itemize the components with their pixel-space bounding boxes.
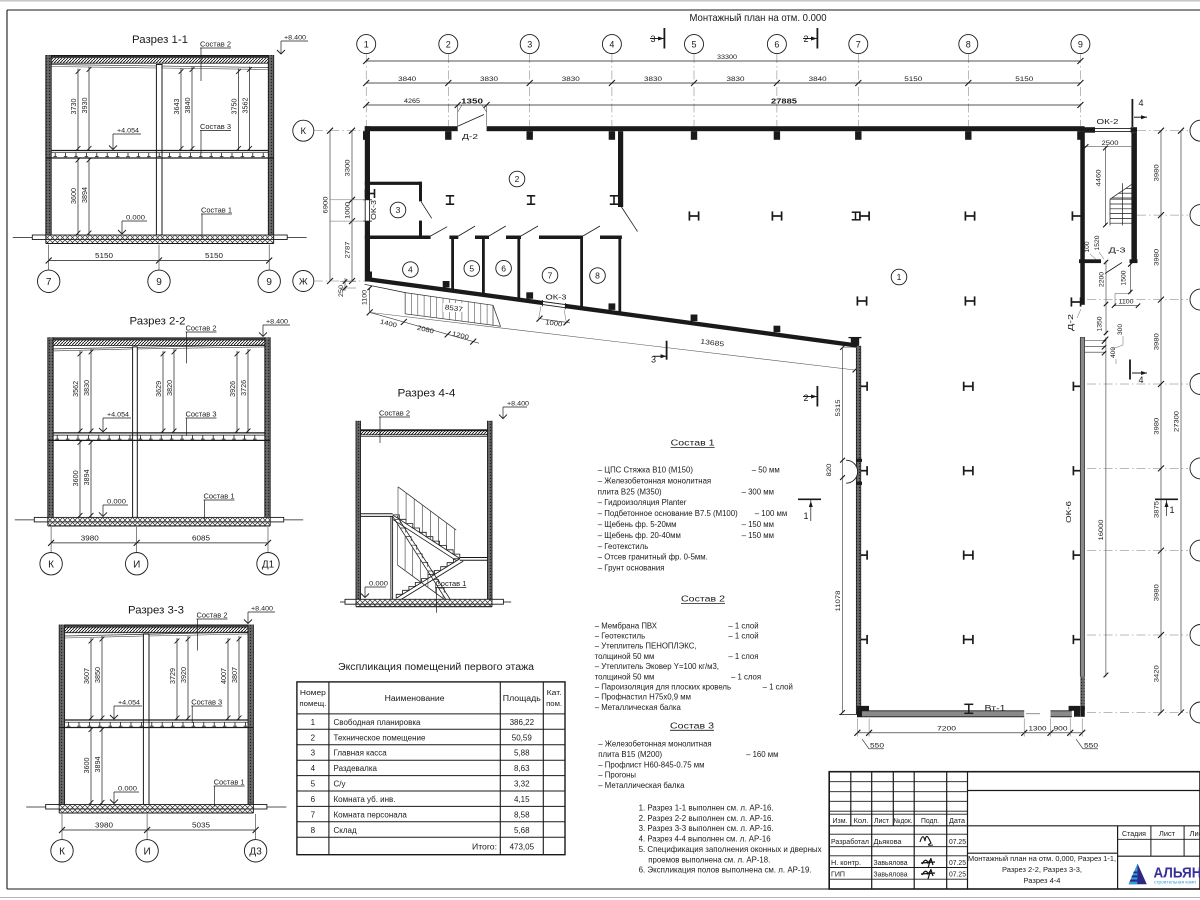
svg-text:– 1 слой: – 1 слой — [728, 632, 758, 641]
svg-text:ОК-3: ОК-3 — [546, 293, 567, 302]
svg-text:5: 5 — [691, 39, 696, 49]
svg-text:3980: 3980 — [81, 533, 99, 542]
svg-text:3562: 3562 — [73, 381, 80, 397]
svg-text:– Гидроизоляция Planter: – Гидроизоляция Planter — [598, 498, 687, 507]
svg-text:Дата: Дата — [949, 818, 965, 825]
svg-text:6: 6 — [501, 263, 506, 273]
svg-text:7: 7 — [856, 39, 861, 49]
svg-text:1100: 1100 — [363, 289, 369, 305]
svg-text:ОК-2: ОК-2 — [1097, 117, 1119, 126]
svg-text:1: 1 — [897, 272, 902, 282]
svg-text:7: 7 — [46, 277, 52, 288]
svg-text:3920: 3920 — [181, 667, 188, 683]
svg-text:0.000: 0.000 — [369, 581, 388, 588]
svg-text:– 1 слой: – 1 слой — [763, 683, 793, 692]
svg-text:Завьялова: Завьялова — [874, 860, 908, 867]
svg-text:4,15: 4,15 — [514, 795, 530, 804]
svg-text:Вт-1: Вт-1 — [985, 704, 1007, 713]
svg-text:400: 400 — [1111, 346, 1117, 358]
svg-text:3726: 3726 — [241, 380, 248, 396]
svg-text:Свободная планировка: Свободная планировка — [334, 718, 421, 727]
svg-text:И: И — [133, 559, 140, 570]
svg-text:386,22: 386,22 — [510, 718, 535, 727]
svg-text:Площадь: Площадь — [503, 694, 541, 703]
svg-text:4265: 4265 — [404, 98, 421, 105]
svg-text:– Железобетонная монолитная: – Железобетонная монолитная — [598, 476, 711, 485]
svg-text:2. Разрез 2-2 выполнен см. л.: 2. Разрез 2-2 выполнен см. л. АР-16. — [639, 813, 774, 823]
svg-text:100: 100 — [1085, 241, 1091, 253]
svg-text:4: 4 — [1138, 98, 1143, 108]
svg-text:3830: 3830 — [727, 76, 746, 83]
svg-text:– 150 мм: – 150 мм — [742, 520, 774, 529]
svg-text:Завьялова: Завьялова — [874, 872, 908, 879]
svg-text:Комната персонала: Комната персонала — [334, 810, 408, 819]
svg-text:3894: 3894 — [82, 187, 89, 203]
svg-text:1: 1 — [803, 511, 808, 521]
svg-text:8: 8 — [595, 271, 600, 281]
svg-text:Д1: Д1 — [262, 559, 275, 570]
svg-text:3830: 3830 — [480, 76, 499, 83]
svg-text:4: 4 — [609, 39, 614, 49]
svg-text:3,32: 3,32 — [514, 780, 530, 789]
svg-text:Разрез 2-2: Разрез 2-2 — [130, 316, 186, 328]
svg-text:3600: 3600 — [71, 188, 78, 204]
svg-text:толщиной 50 мм: толщиной 50 мм — [595, 652, 655, 661]
svg-text:0.000: 0.000 — [126, 215, 145, 222]
svg-text:3875: 3875 — [1154, 501, 1161, 518]
svg-text:4: 4 — [311, 764, 316, 773]
svg-text:Д3: Д3 — [249, 846, 262, 857]
svg-text:строительная комп: строительная комп — [1154, 880, 1197, 885]
svg-text:– Пароизоляция для плоских кро: – Пароизоляция для плоских кровель — [595, 683, 731, 692]
svg-text:4: 4 — [408, 265, 413, 275]
svg-text:2: 2 — [803, 393, 808, 403]
svg-text:+8.400: +8.400 — [251, 606, 273, 613]
svg-text:+8.400: +8.400 — [266, 319, 288, 326]
svg-text:Техническое помещение: Техническое помещение — [334, 733, 426, 742]
svg-text:16000: 16000 — [1098, 519, 1105, 540]
svg-text:3820: 3820 — [167, 380, 174, 396]
svg-text:1: 1 — [364, 39, 369, 49]
svg-text:900: 900 — [1054, 726, 1068, 733]
svg-text:плита В25 (М350): плита В25 (М350) — [598, 487, 662, 496]
svg-text:Состав 2: Состав 2 — [197, 611, 228, 620]
svg-text:3600: 3600 — [84, 757, 91, 773]
svg-text:Экспликация помещений первого: Экспликация помещений первого этажа — [338, 662, 534, 673]
svg-text:1000: 1000 — [345, 202, 352, 219]
svg-text:6. Экспликация полов выполнена: 6. Экспликация полов выполнена см. л. АР… — [639, 865, 812, 875]
svg-text:+8.400: +8.400 — [284, 35, 306, 42]
svg-text:ОК-6: ОК-6 — [1064, 501, 1073, 523]
svg-text:473,05: 473,05 — [510, 843, 535, 852]
svg-text:3830: 3830 — [644, 76, 663, 83]
svg-text:2787: 2787 — [345, 241, 352, 258]
svg-text:50,59: 50,59 — [512, 733, 533, 742]
svg-text:ГИП: ГИП — [831, 872, 845, 879]
svg-text:3980: 3980 — [1154, 417, 1161, 434]
svg-text:6900: 6900 — [323, 196, 330, 213]
svg-text:4460: 4460 — [1096, 169, 1103, 186]
svg-text:1: 1 — [311, 718, 316, 727]
svg-text:– Геотекстиль: – Геотекстиль — [598, 542, 648, 551]
svg-text:3643: 3643 — [174, 98, 181, 114]
svg-text:К: К — [301, 126, 307, 137]
svg-text:– ЦПС Стяжка В10 (М150): – ЦПС Стяжка В10 (М150) — [598, 466, 694, 475]
svg-text:3: 3 — [527, 39, 532, 49]
svg-text:27300: 27300 — [1174, 411, 1181, 432]
svg-text:2200: 2200 — [1100, 271, 1106, 287]
svg-text:07.25: 07.25 — [949, 860, 966, 867]
svg-text:2: 2 — [446, 39, 451, 49]
svg-text:3: 3 — [311, 749, 316, 758]
svg-text:7: 7 — [548, 270, 553, 280]
svg-text:И: И — [144, 846, 151, 857]
svg-text:1520: 1520 — [1095, 235, 1101, 251]
svg-text:6: 6 — [311, 795, 316, 804]
svg-text:3562: 3562 — [242, 97, 249, 113]
svg-text:820: 820 — [826, 463, 833, 476]
svg-text:Разрез 4-4: Разрез 4-4 — [1024, 876, 1061, 885]
svg-text:проемов выполнена см. л. АР-18: проемов выполнена см. л. АР-18. — [648, 854, 770, 864]
svg-text:3807: 3807 — [232, 667, 239, 683]
svg-text:5. Спецификация заполнения око: 5. Спецификация заполнения оконных и две… — [639, 844, 823, 854]
svg-text:К: К — [59, 846, 65, 857]
svg-text:9: 9 — [156, 277, 162, 288]
svg-text:Состав 3: Состав 3 — [186, 410, 217, 419]
svg-text:пом.: пом. — [546, 701, 562, 708]
svg-text:3894: 3894 — [95, 756, 102, 772]
svg-text:3750: 3750 — [231, 98, 238, 114]
svg-text:Лист: Лист — [1159, 831, 1176, 838]
svg-text:– 1 слой: – 1 слой — [728, 621, 758, 630]
svg-text:3980: 3980 — [1154, 248, 1161, 265]
svg-text:11078: 11078 — [835, 590, 842, 611]
svg-text:Состав 3: Состав 3 — [670, 720, 714, 730]
svg-text:1500: 1500 — [1122, 270, 1128, 286]
svg-text:– Мембрана ПВХ: – Мембрана ПВХ — [595, 621, 658, 630]
svg-text:+4.054: +4.054 — [118, 700, 140, 707]
svg-text:– Прогоны: – Прогоны — [598, 771, 636, 780]
svg-text:– Подбетонное основание В7.5 (: – Подбетонное основание В7.5 (М100) — [598, 509, 738, 518]
svg-text:Состав 1: Состав 1 — [671, 438, 715, 448]
svg-text:Состав 1: Состав 1 — [204, 492, 235, 501]
svg-text:1300: 1300 — [1029, 726, 1047, 733]
svg-text:5,88: 5,88 — [514, 749, 530, 758]
svg-text:Состав 3: Состав 3 — [200, 122, 231, 131]
svg-text:5: 5 — [469, 264, 474, 274]
svg-text:плита В15 (М200): плита В15 (М200) — [598, 750, 662, 759]
svg-text:помещ.: помещ. — [299, 699, 326, 708]
svg-text:Итого:: Итого: — [472, 843, 497, 852]
svg-text:0.000: 0.000 — [118, 786, 137, 793]
svg-text:ОК-3: ОК-3 — [369, 200, 378, 220]
svg-text:8: 8 — [966, 39, 971, 49]
svg-text:Стадия: Стадия — [1122, 831, 1146, 838]
svg-text:3730: 3730 — [71, 98, 78, 114]
svg-text:– Утеплитель ПЕНОПЛЭКС,: – Утеплитель ПЕНОПЛЭКС, — [595, 642, 697, 651]
svg-text:1350: 1350 — [1098, 316, 1104, 332]
svg-text:5150: 5150 — [1015, 76, 1034, 83]
svg-text:Кол.: Кол. — [854, 818, 869, 825]
svg-text:3600: 3600 — [73, 470, 80, 486]
svg-text:Номер: Номер — [300, 688, 326, 697]
svg-text:– 1 слоя: – 1 слоя — [728, 652, 758, 661]
svg-text:2: 2 — [311, 733, 316, 742]
svg-text:0.000: 0.000 — [107, 499, 126, 506]
svg-text:Подп.: Подп. — [921, 818, 939, 825]
svg-text:4: 4 — [1138, 375, 1143, 385]
svg-text:Разработал: Разработал — [831, 838, 869, 846]
svg-text:– Утеплитель Эковер Y=100 кг/м: – Утеплитель Эковер Y=100 кг/м3, — [595, 662, 719, 671]
svg-text:1100: 1100 — [1119, 300, 1135, 306]
svg-text:– 300 мм: – 300 мм — [742, 487, 774, 496]
svg-text:3300: 3300 — [345, 159, 352, 176]
svg-text:9: 9 — [266, 277, 272, 288]
svg-text:27885: 27885 — [771, 97, 797, 106]
svg-text:Д-2: Д-2 — [462, 132, 478, 141]
svg-text:Дьякова: Дьякова — [874, 839, 902, 846]
svg-text:3: 3 — [396, 205, 401, 215]
svg-text:Состав 2: Состав 2 — [681, 594, 725, 604]
svg-text:07.25: 07.25 — [949, 872, 966, 879]
svg-text:Состав 1: Состав 1 — [201, 206, 232, 215]
svg-text:550: 550 — [1084, 743, 1098, 750]
svg-text:Ж: Ж — [299, 276, 308, 287]
svg-text:– 100 мм: – 100 мм — [755, 509, 787, 518]
svg-text:2500: 2500 — [1102, 140, 1119, 147]
svg-text:Лис: Лис — [1190, 831, 1200, 838]
svg-text:– 50 мм: – 50 мм — [752, 466, 780, 475]
svg-text:Разрез 4-4: Разрез 4-4 — [398, 388, 456, 400]
svg-text:9: 9 — [1078, 39, 1083, 49]
svg-text:Состав 3: Состав 3 — [191, 698, 222, 707]
svg-text:5: 5 — [311, 780, 316, 789]
svg-text:Состав 2: Состав 2 — [200, 40, 231, 49]
svg-text:– Профнастил Н75х0,9 мм: – Профнастил Н75х0,9 мм — [595, 693, 691, 702]
svg-text:3980: 3980 — [1154, 333, 1161, 350]
svg-text:3894: 3894 — [84, 469, 91, 485]
svg-text:Кат.: Кат. — [547, 690, 562, 697]
svg-text:+4.054: +4.054 — [107, 412, 129, 419]
svg-text:33300: 33300 — [717, 54, 738, 61]
svg-text:3980: 3980 — [95, 821, 113, 830]
svg-text:5150: 5150 — [904, 76, 923, 83]
svg-text:Склад: Склад — [334, 826, 357, 835]
svg-text:Главная касса: Главная касса — [334, 749, 388, 758]
svg-text:+8.400: +8.400 — [507, 401, 529, 408]
svg-text:550: 550 — [870, 743, 884, 750]
svg-text:4. Разрез 4-4 выполнен см. л.: 4. Разрез 4-4 выполнен см. л. АР-16 — [639, 834, 771, 844]
svg-text:Состав 2: Состав 2 — [186, 324, 217, 333]
svg-text:3840: 3840 — [809, 76, 828, 83]
svg-text:3926: 3926 — [230, 381, 237, 397]
svg-text:Н. контр.: Н. контр. — [831, 860, 861, 867]
svg-text:+4.054: +4.054 — [117, 128, 139, 135]
svg-text:5035: 5035 — [192, 821, 210, 830]
svg-text:– 150 мм: – 150 мм — [742, 531, 774, 540]
svg-text:8,58: 8,58 — [514, 810, 530, 819]
svg-text:Д-2: Д-2 — [1066, 314, 1075, 331]
svg-text:Состав 1: Состав 1 — [435, 579, 466, 588]
svg-text:5150: 5150 — [205, 251, 223, 260]
svg-text:– 160 мм: – 160 мм — [746, 750, 778, 759]
svg-text:3850: 3850 — [95, 667, 102, 683]
svg-text:1350: 1350 — [461, 97, 483, 106]
svg-text:2: 2 — [515, 174, 520, 184]
svg-text:Разрез 3-3: Разрез 3-3 — [128, 605, 184, 617]
svg-text:3607: 3607 — [84, 668, 91, 684]
svg-text:3. Разрез 3-3 выполнен см. л.: 3. Разрез 3-3 выполнен см. л. АР-16. — [639, 823, 774, 833]
svg-text:3420: 3420 — [1154, 665, 1161, 682]
svg-text:– Грунт основания: – Грунт основания — [598, 564, 665, 573]
svg-text:Состав 2: Состав 2 — [379, 409, 410, 418]
svg-text:3729: 3729 — [170, 668, 177, 684]
svg-text:Разрез 2-2, Разрез 3-3,: Разрез 2-2, Разрез 3-3, — [1002, 865, 1082, 874]
svg-text:– Профлист Н60-845-0.75 мм: – Профлист Н60-845-0.75 мм — [598, 760, 704, 769]
svg-text:– Металлическая балка: – Металлическая балка — [595, 703, 682, 712]
svg-text:3840: 3840 — [398, 76, 417, 83]
svg-text:5,68: 5,68 — [514, 826, 530, 835]
svg-text:3629: 3629 — [156, 381, 163, 397]
svg-text:Д-3: Д-3 — [1109, 246, 1126, 255]
svg-text:3830: 3830 — [84, 380, 91, 396]
svg-text:7200: 7200 — [937, 726, 956, 733]
svg-text:– Отсев гранитный фр. 0-5мм.: – Отсев гранитный фр. 0-5мм. — [598, 553, 708, 562]
svg-text:1. Разрез 1-1 выполнен см. л.: 1. Разрез 1-1 выполнен см. л. АР-16. — [639, 803, 774, 813]
svg-text:Изм.: Изм. — [833, 818, 848, 825]
svg-text:С/у: С/у — [334, 780, 346, 789]
svg-text:5150: 5150 — [95, 251, 113, 260]
svg-text:Состав 1: Состав 1 — [214, 778, 245, 787]
svg-text:Разрез 1-1: Разрез 1-1 — [132, 34, 188, 46]
svg-text:250: 250 — [339, 284, 345, 297]
svg-text:– 1 слоя: – 1 слоя — [731, 672, 761, 681]
svg-text:3930: 3930 — [82, 97, 89, 113]
svg-text:Монтажный план на отм. 0,000,: Монтажный план на отм. 0,000, Разрез 1-1… — [968, 854, 1116, 863]
svg-text:5315: 5315 — [835, 399, 842, 416]
svg-text:6085: 6085 — [192, 533, 210, 542]
svg-text:– Железобетонная монолитная: – Железобетонная монолитная — [598, 740, 711, 749]
svg-text:07.25: 07.25 — [949, 839, 966, 846]
svg-text:6: 6 — [774, 39, 779, 49]
svg-text:8,63: 8,63 — [514, 764, 530, 773]
svg-text:Лист: Лист — [874, 818, 890, 825]
svg-text:Наименование: Наименование — [385, 694, 446, 703]
svg-text:– Щебень фр. 20-40мм: – Щебень фр. 20-40мм — [598, 531, 681, 540]
svg-text:толщиной 50 мм: толщиной 50 мм — [595, 672, 655, 681]
svg-text:3830: 3830 — [562, 76, 581, 83]
svg-text:– Щебень фр. 5-20мм: – Щебень фр. 5-20мм — [598, 520, 677, 529]
svg-text:– Металлическая балка: – Металлическая балка — [598, 781, 685, 790]
svg-text:8: 8 — [311, 826, 316, 835]
svg-text:3980: 3980 — [1154, 164, 1161, 181]
svg-text:Комната уб. инв.: Комната уб. инв. — [334, 795, 396, 804]
svg-text:4007: 4007 — [221, 668, 228, 684]
svg-text:К: К — [48, 559, 54, 570]
svg-text:3840: 3840 — [185, 97, 192, 113]
svg-text:7: 7 — [311, 810, 316, 819]
svg-text:№док.: №док. — [894, 818, 913, 825]
svg-text:Монтажный план на отм. 0.000: Монтажный план на отм. 0.000 — [690, 12, 827, 24]
svg-text:Раздевалка: Раздевалка — [334, 764, 378, 773]
svg-text:1: 1 — [1169, 505, 1174, 515]
svg-text:300: 300 — [1118, 323, 1124, 335]
svg-text:3980: 3980 — [1154, 584, 1161, 601]
svg-text:– Геотекстиль: – Геотекстиль — [595, 632, 645, 641]
